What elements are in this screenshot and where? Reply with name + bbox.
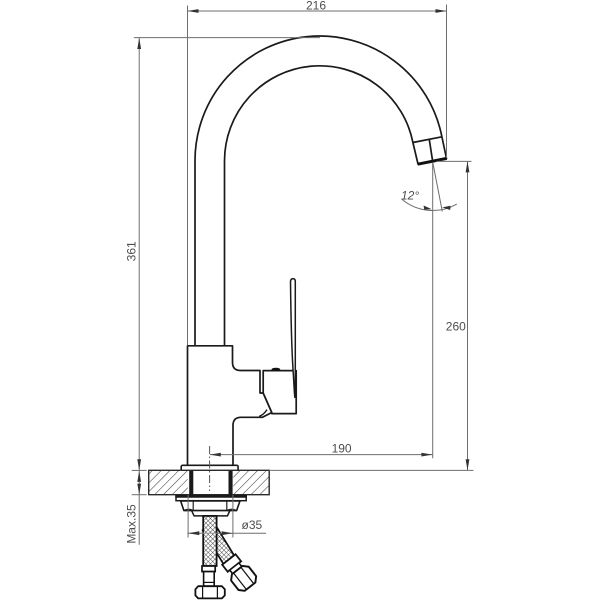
svg-text:Max.35: Max.35 — [125, 504, 139, 544]
svg-text:ø35: ø35 — [242, 518, 263, 532]
svg-text:216: 216 — [306, 0, 326, 12]
svg-text:361: 361 — [124, 241, 138, 261]
svg-text:260: 260 — [446, 320, 466, 334]
svg-text:190: 190 — [332, 442, 352, 456]
svg-text:12°: 12° — [401, 189, 419, 203]
